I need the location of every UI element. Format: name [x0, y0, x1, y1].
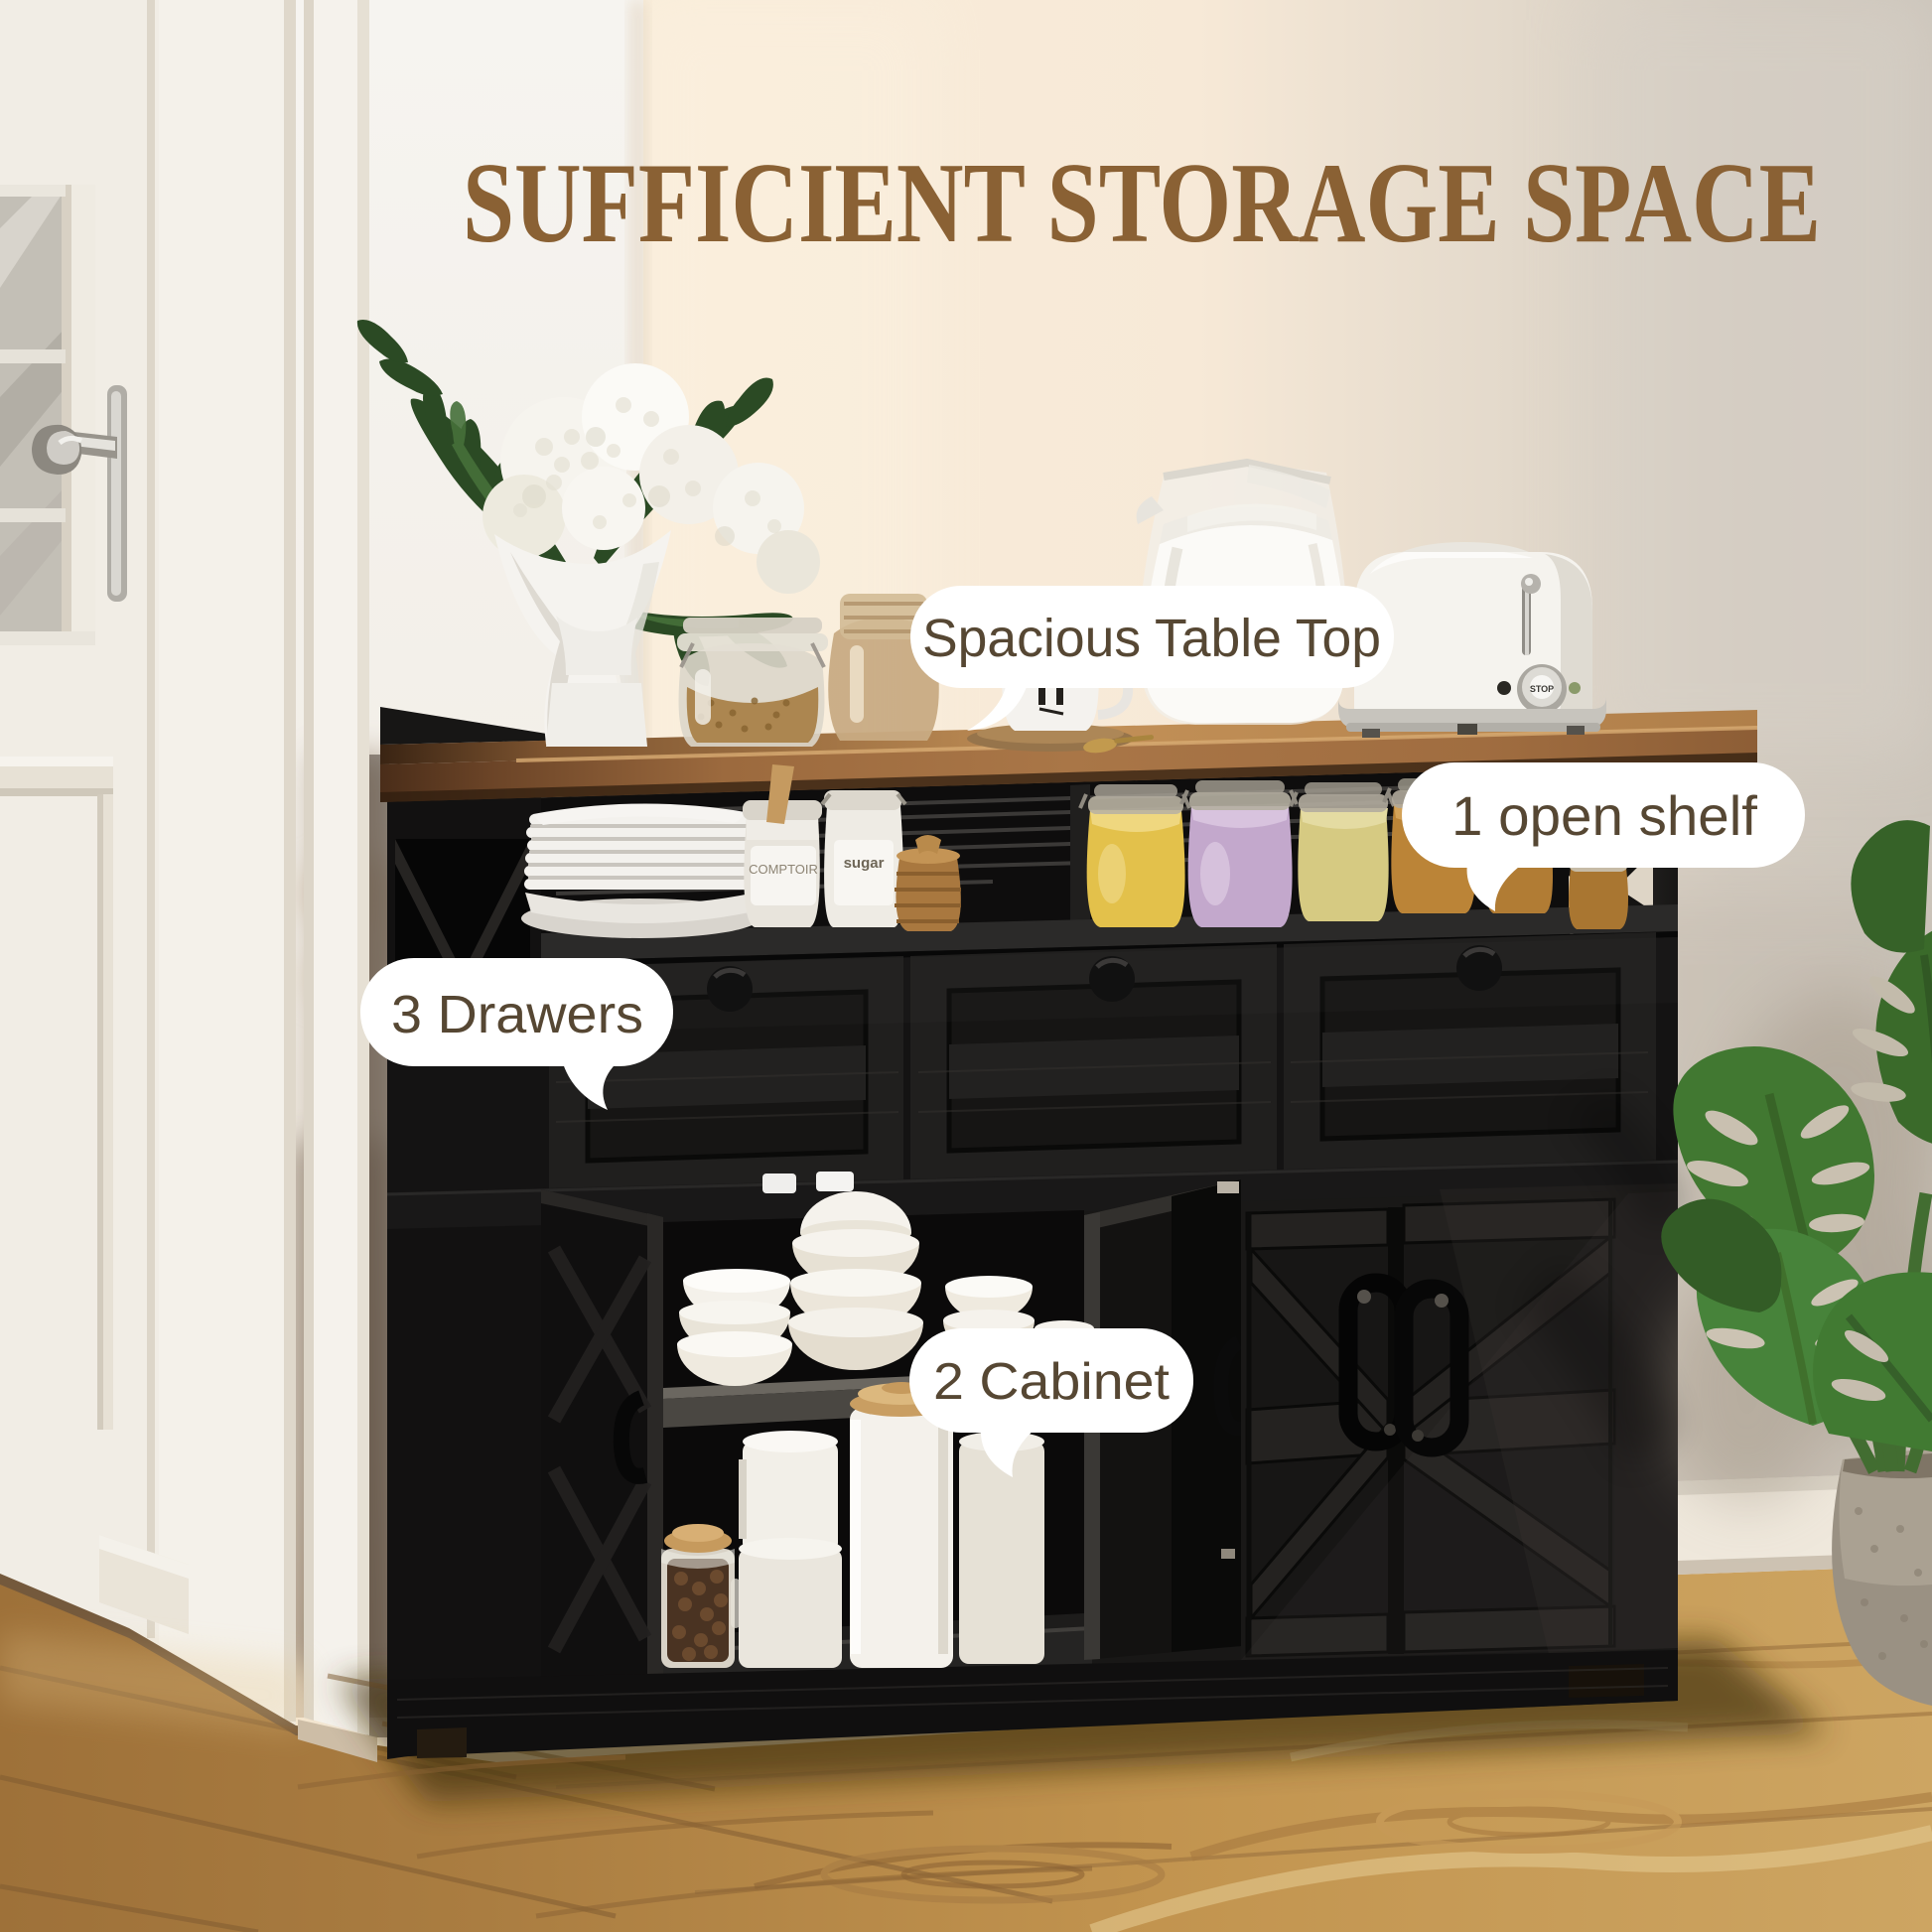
svg-text:1 open shelf: 1 open shelf [1451, 784, 1757, 847]
svg-text:STOP: STOP [1530, 684, 1554, 694]
svg-text:COMPTOIR: COMPTOIR [749, 862, 818, 877]
svg-text:sugar: sugar [844, 855, 885, 872]
svg-text:2 Cabinet: 2 Cabinet [933, 1353, 1171, 1411]
svg-text:3 Drawers: 3 Drawers [391, 985, 643, 1044]
svg-text:SUFFICIENT STORAGE SPACE: SUFFICIENT STORAGE SPACE [463, 140, 1821, 267]
svg-text:Spacious Table Top: Spacious Table Top [922, 609, 1381, 668]
